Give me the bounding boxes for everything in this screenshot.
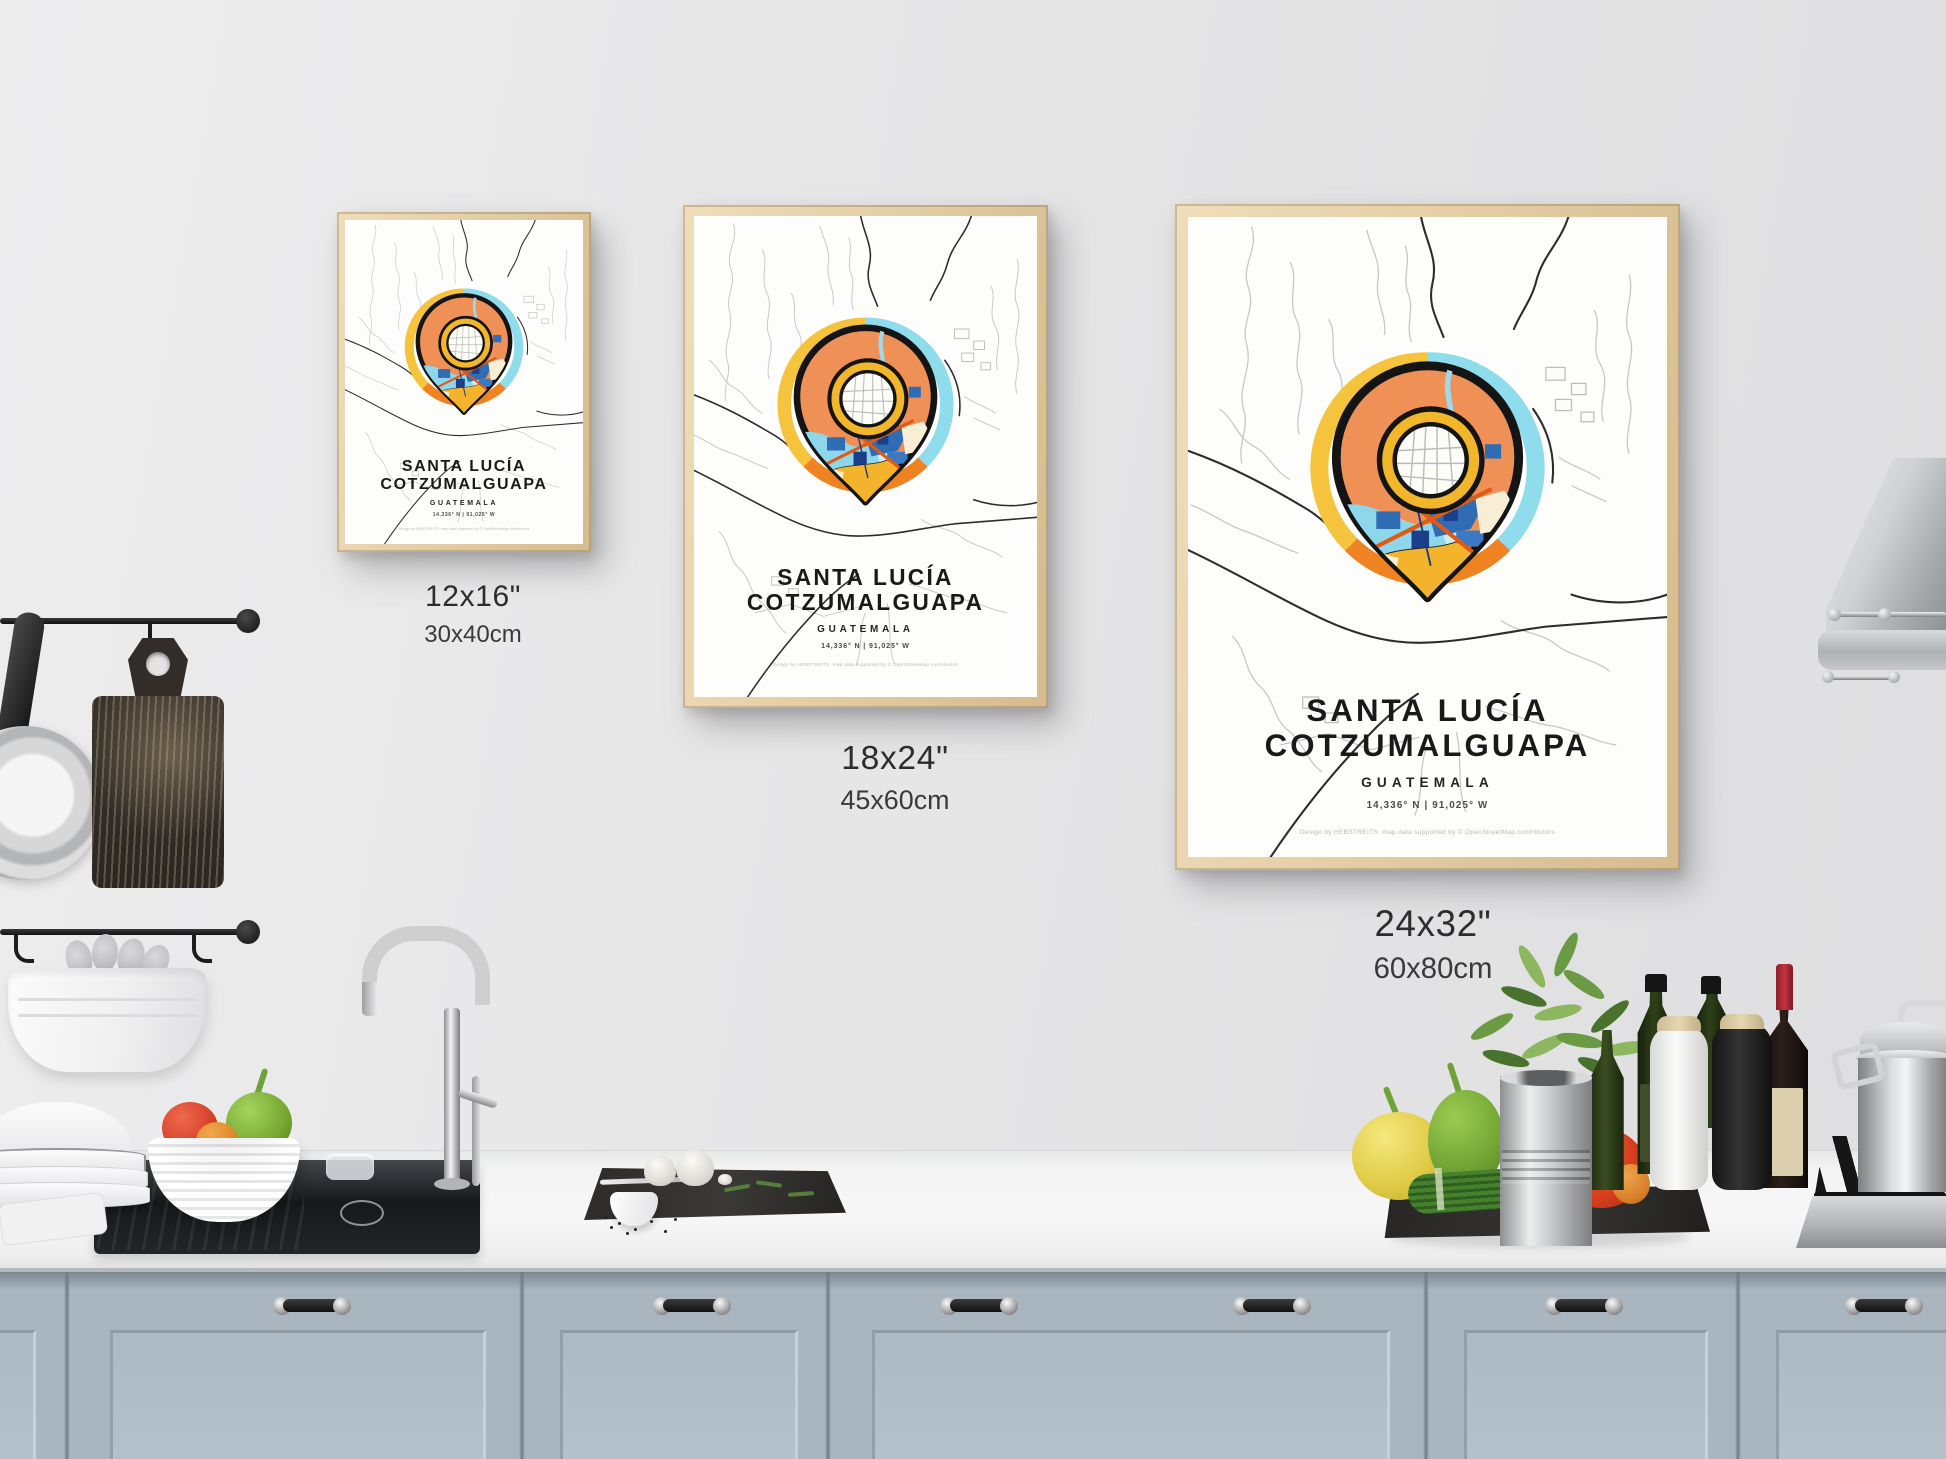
poster-title-line2: COTZUMALGUAPA bbox=[345, 476, 583, 494]
soap-bar bbox=[326, 1154, 374, 1180]
poster-title-line2: COTZUMALGUAPA bbox=[1188, 729, 1667, 764]
bottle-cap bbox=[1701, 976, 1721, 994]
cabinet-door-panel bbox=[560, 1330, 798, 1459]
poster-country: GUATEMALA bbox=[1188, 775, 1667, 790]
bucket-groove bbox=[18, 998, 196, 1001]
poster-frame-18x24: SANTA LUCÍA COTZUMALGUAPA GUATEMALA 14,3… bbox=[683, 205, 1048, 708]
mill-cap bbox=[1657, 1016, 1701, 1031]
frying-pan bbox=[0, 726, 102, 880]
cabinet-handle bbox=[1845, 1294, 1923, 1318]
stove-base bbox=[1796, 1196, 1946, 1248]
size-label-24x32: 24x32" 60x80cm bbox=[1303, 903, 1563, 986]
faucet-spout-arc bbox=[362, 926, 490, 1005]
wall-rail-lower bbox=[0, 929, 258, 935]
poster-frame-12x16: SANTA LUCÍA COTZUMALGUAPA GUATEMALA 14,3… bbox=[337, 212, 591, 552]
size-inches: 18x24" bbox=[765, 740, 1025, 778]
under-counter-shadow bbox=[0, 1272, 1946, 1290]
faucet-spout-tip bbox=[362, 982, 377, 1016]
cabinet-handle bbox=[1233, 1294, 1311, 1318]
poster-country: GUATEMALA bbox=[694, 624, 1037, 635]
cabinet-seam bbox=[825, 1272, 831, 1459]
faucet-column bbox=[444, 1008, 460, 1186]
rail-hook bbox=[192, 933, 212, 963]
handle-rosette bbox=[1000, 1297, 1018, 1315]
garlic-bulb bbox=[644, 1156, 676, 1186]
cabinet-seam bbox=[1423, 1272, 1429, 1459]
poster-text-block: SANTA LUCÍA COTZUMALGUAPA GUATEMALA 14,3… bbox=[694, 565, 1037, 668]
poster-coordinates: 14,336° N | 91,025° W bbox=[694, 642, 1037, 650]
hood-rail-finial bbox=[1822, 671, 1834, 683]
poster-credit: Design by HEBSTREITS, map data supported… bbox=[345, 527, 583, 531]
kitchen-mockup-scene: SANTA LUCÍA COTZUMALGUAPA GUATEMALA 14,3… bbox=[0, 0, 1946, 1459]
hood-rail-finial bbox=[1878, 608, 1891, 621]
size-inches: 12x16" bbox=[343, 580, 603, 614]
salt-mill-white bbox=[1650, 1024, 1708, 1190]
leaf bbox=[1560, 966, 1607, 1004]
handle-rosette bbox=[333, 1297, 351, 1315]
poster-title-line2: COTZUMALGUAPA bbox=[694, 590, 1037, 615]
garlic-bulb bbox=[676, 1150, 714, 1186]
faucet-base bbox=[434, 1178, 470, 1190]
size-cm: 30x40cm bbox=[343, 621, 603, 649]
poster-paper: SANTA LUCÍA COTZUMALGUAPA GUATEMALA 14,3… bbox=[345, 220, 583, 544]
cabinet-handle bbox=[1545, 1294, 1623, 1318]
cabinet-handle bbox=[940, 1294, 1018, 1318]
poster-country: GUATEMALA bbox=[345, 500, 583, 507]
cabinet-door-panel bbox=[1464, 1330, 1708, 1459]
hood-rail-finial bbox=[1888, 671, 1900, 683]
utensil-bucket bbox=[8, 968, 206, 1072]
poster-title-line1: SANTA LUCÍA bbox=[694, 565, 1037, 590]
size-inches: 24x32" bbox=[1303, 903, 1563, 945]
leaf bbox=[1468, 1009, 1516, 1044]
rail-end-cap bbox=[236, 920, 260, 944]
handle-rosette bbox=[1605, 1297, 1623, 1315]
cutting-board bbox=[92, 696, 224, 888]
hood-band bbox=[1818, 630, 1946, 670]
range-hood bbox=[1808, 458, 1946, 698]
cutting-board-hole bbox=[146, 652, 170, 676]
poster-frame-24x32: SANTA LUCÍA COTZUMALGUAPA GUATEMALA 14,3… bbox=[1175, 204, 1680, 870]
poster-title-line1: SANTA LUCÍA bbox=[345, 458, 583, 476]
poster-credit: Design by HEBSTREITS, map data supported… bbox=[694, 663, 1037, 668]
leaf bbox=[1555, 1030, 1605, 1051]
cabinet-door-panel bbox=[110, 1330, 486, 1459]
poster-text-block: SANTA LUCÍA COTZUMALGUAPA GUATEMALA 14,3… bbox=[1188, 694, 1667, 836]
cabinet-door-panel bbox=[1776, 1330, 1946, 1459]
rail-end-cap bbox=[236, 609, 260, 633]
poster-coordinates: 14,336° N | 91,025° W bbox=[345, 512, 583, 518]
utensil bbox=[91, 933, 120, 973]
handle-rosette bbox=[1905, 1297, 1923, 1315]
handle-rosette bbox=[713, 1297, 731, 1315]
cabinet-door-panel bbox=[0, 1330, 36, 1459]
garlic-clove bbox=[718, 1174, 732, 1185]
hood-rail-finial bbox=[1828, 608, 1841, 621]
poster-credit: Design by HEBSTREITS, map data supported… bbox=[1188, 829, 1667, 836]
bucket-groove bbox=[18, 1014, 196, 1017]
mill-cap bbox=[1720, 1014, 1764, 1029]
handle-rosette bbox=[1293, 1297, 1311, 1315]
poster-paper: SANTA LUCÍA COTZUMALGUAPA GUATEMALA 14,3… bbox=[694, 216, 1037, 697]
wine-bottle-cap bbox=[1776, 964, 1793, 1010]
size-label-12x16: 12x16" 30x40cm bbox=[343, 580, 603, 649]
tin-can-ribs bbox=[1502, 1150, 1590, 1184]
cabinet-seam bbox=[64, 1272, 70, 1459]
hood-lower-rail bbox=[1828, 676, 1894, 680]
cabinet-door-panel bbox=[872, 1330, 1390, 1459]
cabinet-seam bbox=[519, 1272, 525, 1459]
cabinet-handle bbox=[653, 1294, 731, 1318]
poster-coordinates: 14,336° N | 91,025° W bbox=[1188, 800, 1667, 811]
peppercorns bbox=[604, 1216, 607, 1219]
poster-text-block: SANTA LUCÍA COTZUMALGUAPA GUATEMALA 14,3… bbox=[345, 458, 583, 531]
size-label-18x24: 18x24" 45x60cm bbox=[765, 740, 1025, 816]
poster-title-line1: SANTA LUCÍA bbox=[1188, 694, 1667, 729]
tin-can-rim bbox=[1500, 1070, 1592, 1086]
poster-paper: SANTA LUCÍA COTZUMALGUAPA GUATEMALA 14,3… bbox=[1188, 217, 1667, 857]
cabinet-seam bbox=[1735, 1272, 1741, 1459]
pepper-mill-black bbox=[1712, 1022, 1772, 1190]
size-cm: 45x60cm bbox=[765, 785, 1025, 816]
rail-hook bbox=[14, 933, 34, 963]
bottle-cap bbox=[1645, 974, 1667, 992]
cabinet-handle bbox=[273, 1294, 351, 1318]
sink-drain-logo bbox=[340, 1200, 384, 1226]
